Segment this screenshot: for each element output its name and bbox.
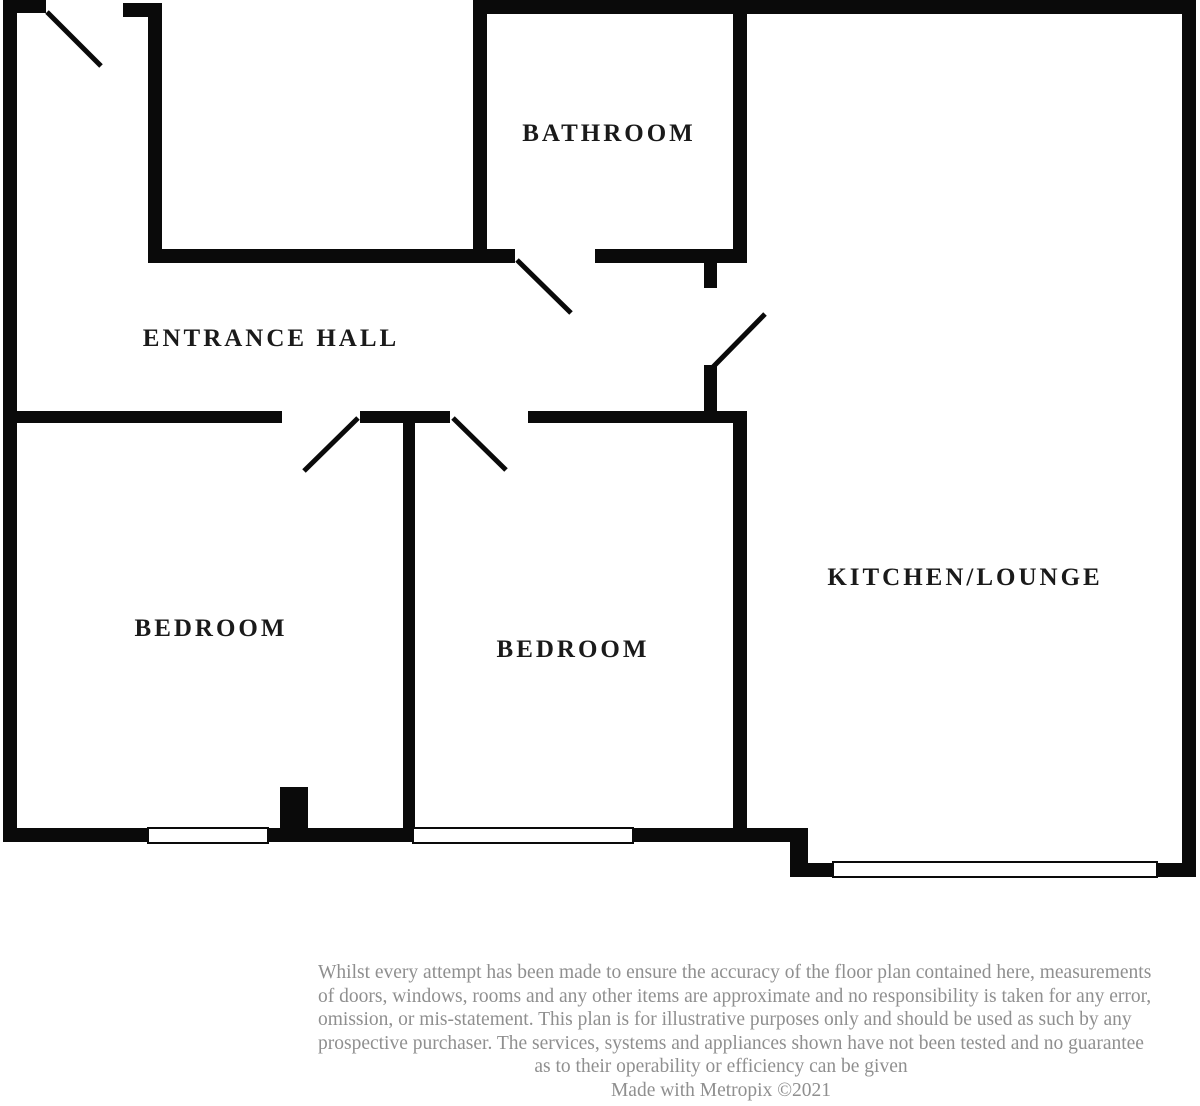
wall-chimney-stub — [280, 787, 308, 832]
door-swing-bathroom — [517, 260, 571, 313]
door-swing-bedroom-middle — [453, 418, 506, 470]
disclaimer-line: prospective purchaser. The services, sys… — [318, 1032, 1124, 1056]
wall-corridor-right — [148, 3, 162, 263]
disclaimer-line: Whilst every attempt has been made to en… — [318, 961, 1124, 985]
wall-bathroom-bottom — [595, 249, 743, 263]
window-bedroom-middle — [413, 828, 633, 843]
wall-kitchen-bottom-left — [805, 863, 835, 877]
wall-hall-top — [148, 249, 515, 263]
wall-bathroom-right — [733, 0, 747, 263]
room-label-bedroom-left: BEDROOM — [135, 615, 288, 643]
door-swing-entrance — [47, 12, 101, 66]
wall-right-outer — [1182, 0, 1196, 877]
disclaimer-block: Whilst every attempt has been made to en… — [318, 961, 1124, 1103]
wall-kitchen-door-stub-lower — [704, 365, 717, 415]
room-label-bathroom: BATHROOM — [522, 120, 696, 148]
wall-kitchen-bottom-right — [1157, 863, 1196, 877]
room-label-bedroom-middle: BEDROOM — [497, 636, 650, 664]
room-label-entrance-hall: ENTRANCE HALL — [143, 325, 399, 353]
wall-kitchen-door-stub-upper — [704, 256, 717, 288]
disclaimer-line: as to their operability or efficiency ca… — [318, 1055, 1124, 1079]
disclaimer-line: omission, or mis-statement. This plan is… — [318, 1008, 1124, 1032]
window-kitchen-lounge — [833, 862, 1157, 877]
wall-hall-bottom-1 — [3, 411, 282, 423]
floor-plan — [0, 0, 1200, 1106]
wall-bedroom-divider — [403, 411, 415, 842]
wall-bottom-1 — [3, 828, 148, 842]
wall-kitchen-left-lower — [733, 411, 747, 842]
disclaimer-line: of doors, windows, rooms and any other i… — [318, 985, 1124, 1009]
door-swing-kitchen-lounge — [713, 314, 765, 367]
metropix-credit: Made with Metropix ©2021 — [318, 1079, 1124, 1103]
wall-hall-bottom-3 — [528, 411, 743, 423]
window-bedroom-left — [148, 828, 268, 843]
wall-top-left-stub — [3, 0, 46, 13]
wall-top-main — [473, 0, 1196, 14]
room-label-kitchen-lounge: KITCHEN/LOUNGE — [827, 564, 1102, 592]
wall-bottom-3 — [633, 828, 807, 842]
door-swing-bedroom-left — [304, 418, 358, 471]
wall-bathroom-left — [473, 0, 487, 263]
